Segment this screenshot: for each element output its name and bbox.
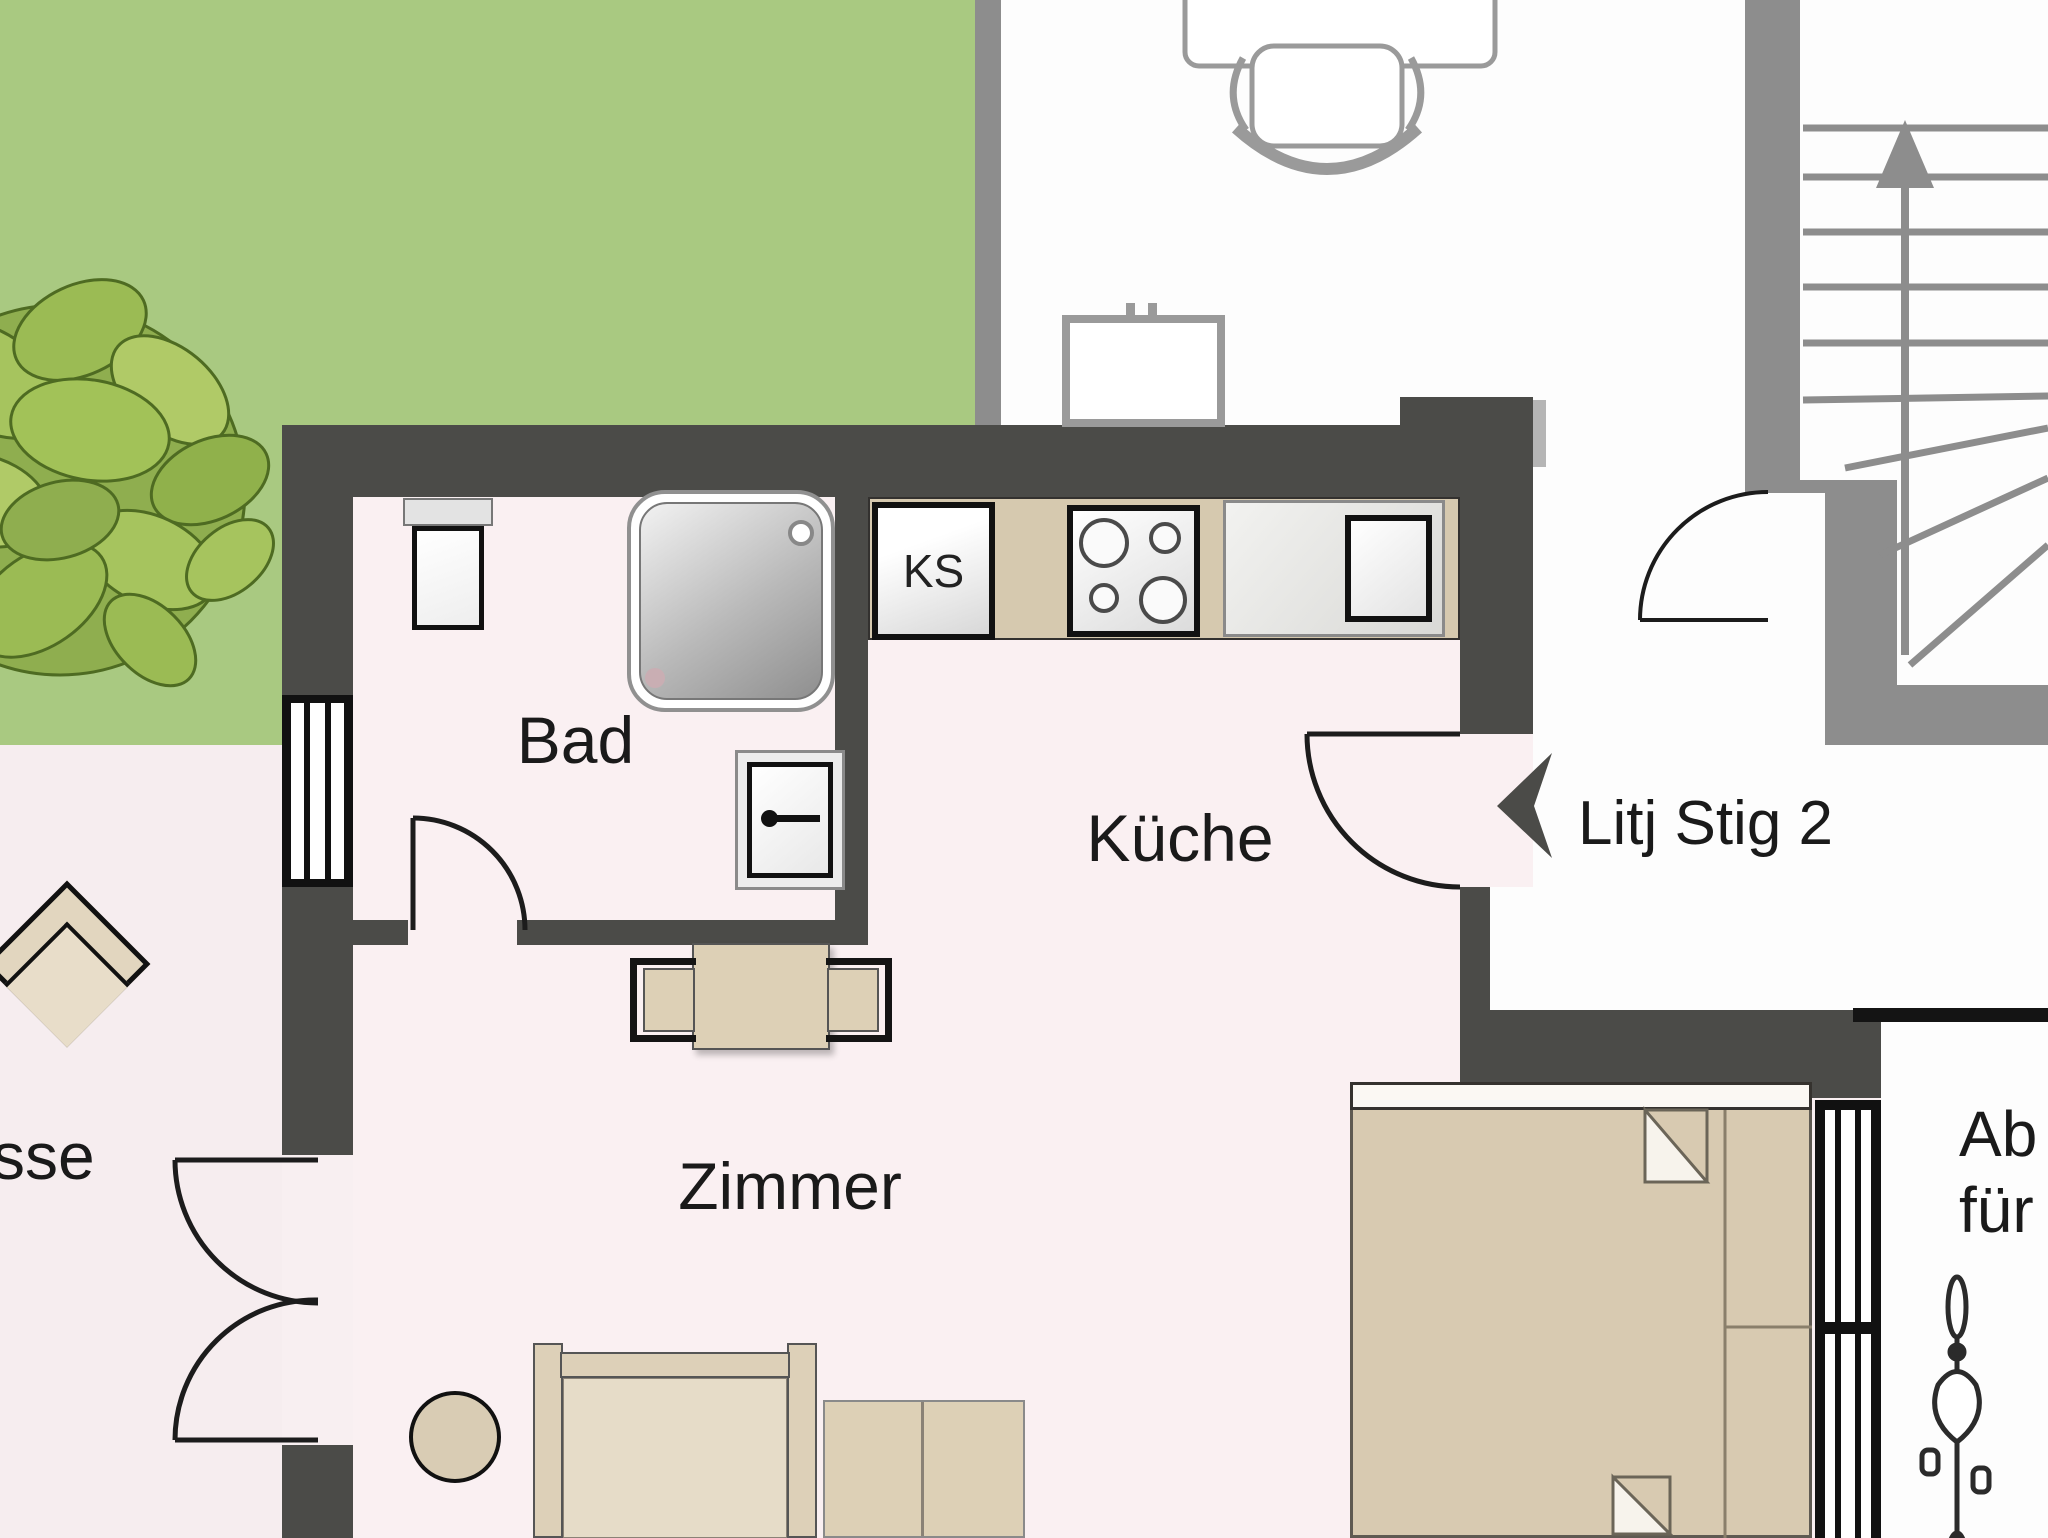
label-storage-line1: Ab (1959, 1096, 2037, 1172)
landing-chair-seat (1252, 46, 1402, 146)
landing-chair-arm-right (1408, 58, 1421, 130)
label-terrace-partial: sse (0, 1118, 95, 1194)
label-bathroom: Bad (478, 702, 673, 778)
label-room: Zimmer (655, 1148, 925, 1224)
stove-burners (1081, 520, 1185, 622)
floor-plan: KS (0, 0, 2048, 1538)
label-kitchen: Küche (1055, 800, 1305, 876)
label-stair-hall: Litj Stig 2 (1578, 788, 1833, 859)
direction-arrow-icon (1497, 753, 1552, 858)
staircase (1803, 128, 2048, 665)
stairwell-door (1640, 492, 1768, 620)
bed-fold-top (1645, 1110, 1707, 1182)
landing-chair-arm-left (1233, 58, 1246, 130)
bed-fold-bottom (1613, 1477, 1670, 1534)
label-storage-line2: für (1959, 1172, 2037, 1248)
label-storage: Ab für (1959, 1096, 2037, 1248)
linework-layer (0, 0, 2048, 1538)
stairs-up-arrow (1876, 120, 1934, 655)
terrace-french-doors (175, 1160, 318, 1440)
landing-table-and-chair (1185, 0, 1495, 169)
bathroom-door (413, 818, 525, 930)
bicycle-icon (1922, 1277, 1989, 1538)
bed-details (1725, 1110, 1812, 1538)
entry-door (1307, 734, 1460, 887)
